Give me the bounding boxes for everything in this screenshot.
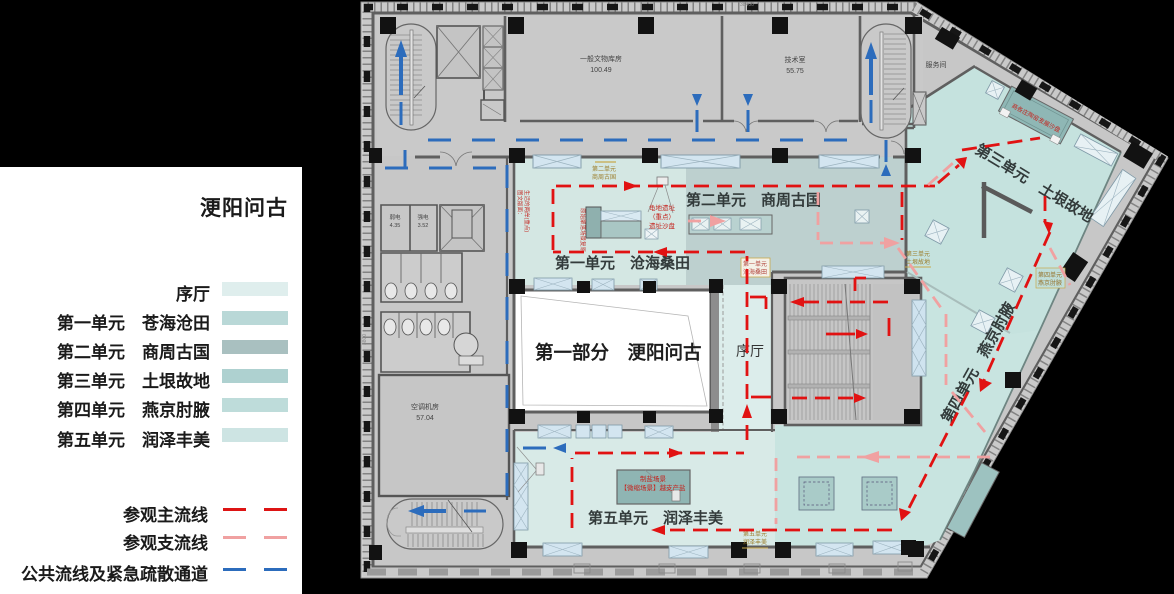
- svg-text:原始聚落场景复原: 原始聚落场景复原: [579, 208, 587, 253]
- svg-text:强电: 强电: [417, 213, 429, 221]
- svg-text:第一部分 浭阳问古: 第一部分 浭阳问古: [535, 342, 702, 363]
- svg-text:100.49: 100.49: [590, 67, 612, 74]
- svg-text:润泽丰美: 润泽丰美: [743, 538, 767, 546]
- svg-text:第四单元: 第四单元: [1038, 271, 1062, 279]
- svg-text:技术室: 技术室: [785, 55, 806, 64]
- svg-text:图文版面：: 图文版面：: [516, 190, 524, 218]
- svg-text:第二单元 商周古国: 第二单元 商周古国: [686, 191, 821, 209]
- svg-text:57.04: 57.04: [416, 415, 434, 422]
- svg-text:龟地遗址: 龟地遗址: [649, 203, 676, 212]
- svg-text:【微缩场景】越支产盐: 【微缩场景】越支产盐: [621, 483, 687, 492]
- svg-text:服务间: 服务间: [926, 60, 947, 69]
- svg-text:第一单元: 第一单元: [743, 260, 767, 268]
- svg-text:空调机房: 空调机房: [411, 402, 439, 411]
- svg-text:55.75: 55.75: [786, 68, 804, 75]
- svg-text:燕京肘腋: 燕京肘腋: [1038, 279, 1062, 287]
- svg-text:第一单元 沧海桑田: 第一单元 沧海桑田: [555, 254, 690, 272]
- svg-text:一般文物库房: 一般文物库房: [580, 54, 622, 63]
- svg-text:遗址沙盘: 遗址沙盘: [649, 221, 676, 230]
- svg-text:弱电: 弱电: [389, 213, 401, 221]
- svg-text:第二单元: 第二单元: [592, 165, 616, 173]
- svg-text:序厅: 序厅: [736, 344, 764, 360]
- svg-text:商周古国: 商周古国: [592, 173, 616, 181]
- svg-text:制盐场景: 制盐场景: [640, 474, 667, 483]
- svg-text:38400: 38400: [740, 2, 754, 8]
- svg-text:4.35: 4.35: [390, 223, 401, 229]
- svg-text:3800: 3800: [362, 334, 368, 345]
- svg-text:第五单元 润泽丰美: 第五单元 润泽丰美: [588, 509, 724, 527]
- svg-text:3.52: 3.52: [418, 223, 429, 229]
- svg-text:第三单元: 第三单元: [906, 250, 930, 258]
- svg-text:生活的两岸(重点): 生活的两岸(重点): [523, 190, 531, 232]
- svg-text:（重点）: （重点）: [649, 213, 675, 221]
